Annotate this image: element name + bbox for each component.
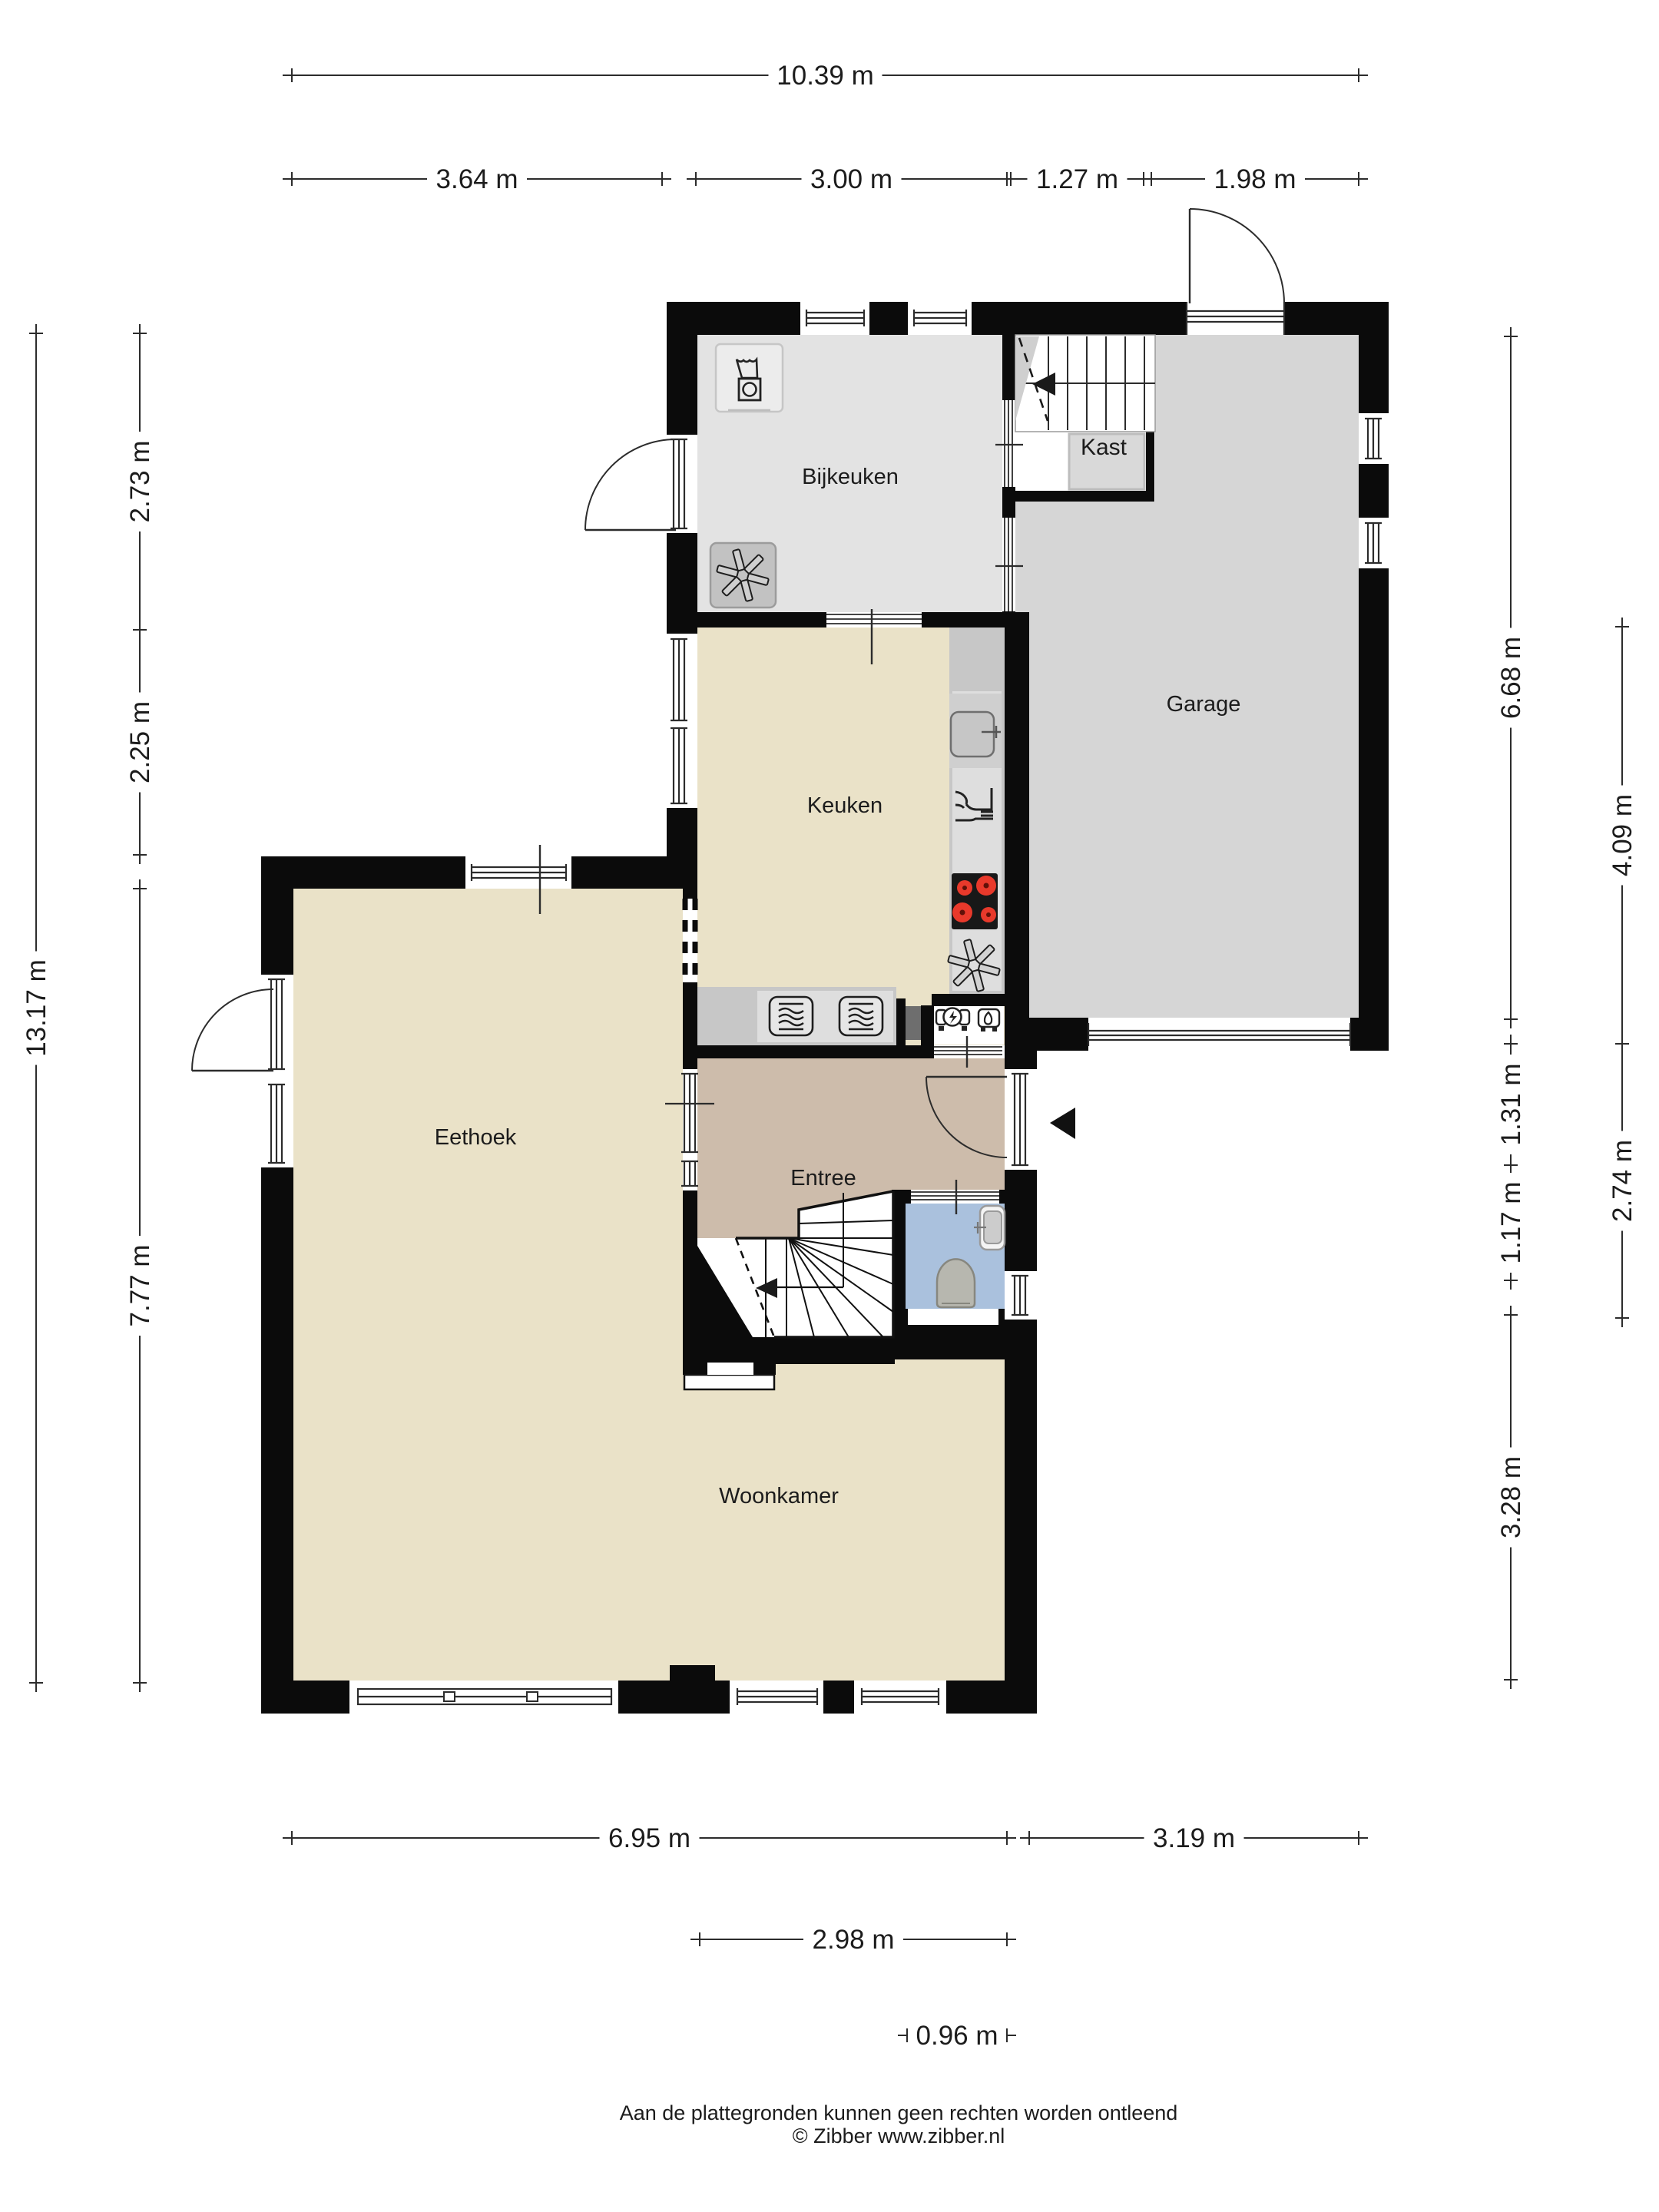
svg-text:7.77 m: 7.77 m xyxy=(125,1245,155,1327)
svg-text:4.09 m: 4.09 m xyxy=(1608,794,1637,876)
svg-text:6.68 m: 6.68 m xyxy=(1496,637,1526,719)
svg-text:1.27 m: 1.27 m xyxy=(1036,164,1118,194)
svg-text:2.73 m: 2.73 m xyxy=(125,441,155,523)
svg-text:Woonkamer: Woonkamer xyxy=(719,1484,839,1508)
svg-text:2.25 m: 2.25 m xyxy=(125,701,155,783)
svg-text:1.98 m: 1.98 m xyxy=(1214,164,1296,194)
svg-text:Kast: Kast xyxy=(1081,435,1128,460)
svg-text:0.96 m: 0.96 m xyxy=(916,2021,998,2051)
svg-text:Keuken: Keuken xyxy=(807,793,882,818)
svg-text:1.31 m: 1.31 m xyxy=(1496,1064,1526,1146)
svg-text:Entree: Entree xyxy=(790,1166,856,1190)
svg-text:13.17 m: 13.17 m xyxy=(22,959,51,1056)
svg-text:3.28 m: 3.28 m xyxy=(1496,1456,1526,1538)
svg-text:Aan de plattegronden kunnen ge: Aan de plattegronden kunnen geen rechten… xyxy=(620,2101,1178,2124)
svg-text:2.74 m: 2.74 m xyxy=(1608,1140,1637,1222)
svg-text:Garage: Garage xyxy=(1167,692,1241,717)
svg-text:Eethoek: Eethoek xyxy=(435,1125,517,1150)
svg-text:1.17 m: 1.17 m xyxy=(1496,1182,1526,1264)
svg-text:6.95 m: 6.95 m xyxy=(608,1823,690,1853)
svg-text:3.64 m: 3.64 m xyxy=(436,164,518,194)
svg-text:2.98 m: 2.98 m xyxy=(813,1925,895,1955)
svg-text:3.00 m: 3.00 m xyxy=(810,164,892,194)
svg-text:10.39 m: 10.39 m xyxy=(777,61,873,91)
svg-text:Bijkeuken: Bijkeuken xyxy=(802,465,899,489)
svg-text:© Zibber www.zibber.nl: © Zibber www.zibber.nl xyxy=(793,2124,1005,2147)
svg-text:3.19 m: 3.19 m xyxy=(1153,1823,1235,1853)
